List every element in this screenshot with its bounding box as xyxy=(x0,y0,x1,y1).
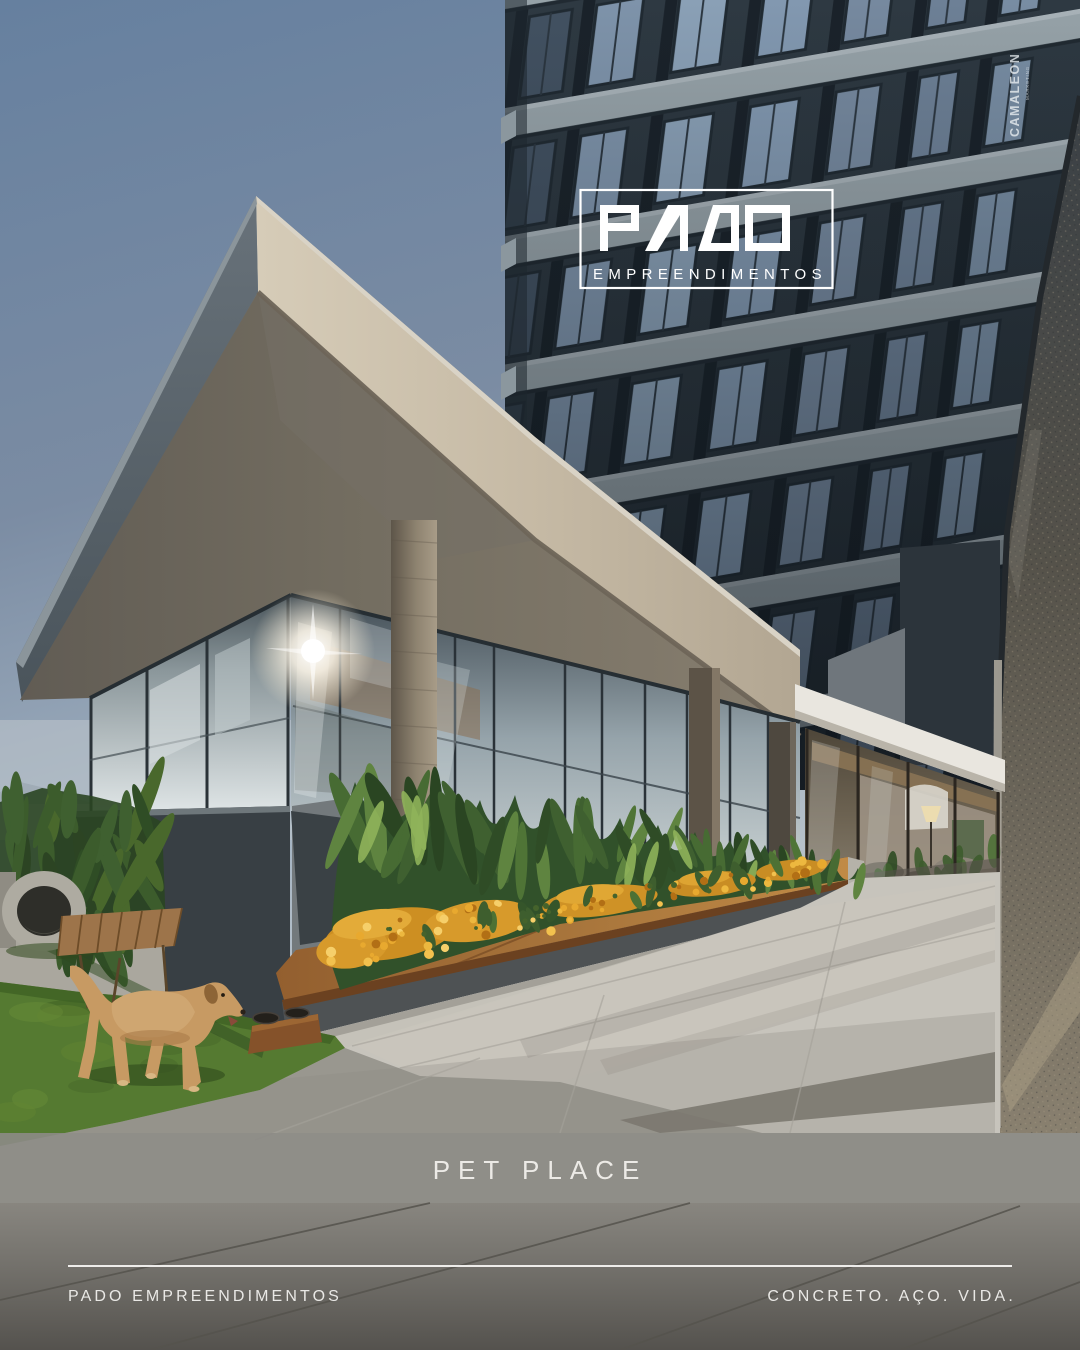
svg-text:CAMALEON: CAMALEON xyxy=(1008,53,1022,137)
svg-text:EMPREENDIMENTOS: EMPREENDIMENTOS xyxy=(593,266,827,283)
svg-text:MARKETING: MARKETING xyxy=(1025,66,1030,100)
svg-text:PET PLACE: PET PLACE xyxy=(433,1155,648,1185)
svg-text:CONCRETO. AÇO. VIDA.: CONCRETO. AÇO. VIDA. xyxy=(767,1288,1016,1305)
svg-text:PADO EMPREENDIMENTOS: PADO EMPREENDIMENTOS xyxy=(68,1288,342,1305)
